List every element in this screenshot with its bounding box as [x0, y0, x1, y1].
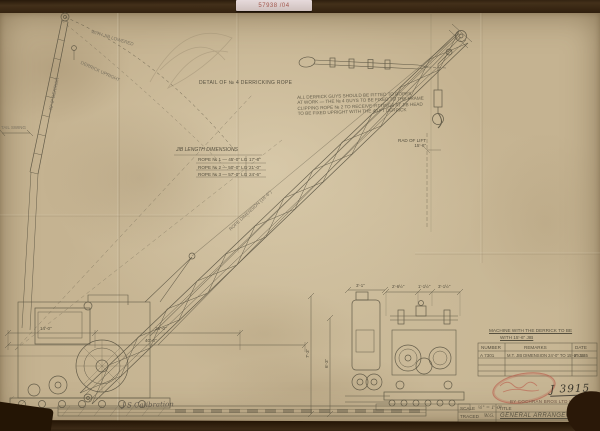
jib-table-row-value: 21'-0": [249, 165, 261, 170]
jib-table-row-value: 17'-6": [249, 157, 261, 162]
revisions-header-remarks: REMARKS: [524, 345, 547, 350]
sticker-number: 57938 /04: [258, 3, 289, 9]
revisions-header-date: DATE: [575, 345, 587, 350]
derricking-rope-detail: [298, 56, 446, 69]
dim-label: 7'-3": [305, 349, 310, 358]
tail-swing-label: TAIL SWING: [1, 125, 26, 130]
jib-table-row-item: ROPE № 1 — 45'-0" LG: [198, 157, 247, 162]
jib-table-row-item: ROPE № 2 — 50'-0" LG: [198, 165, 247, 170]
revisions-header-number: NUMBER: [481, 345, 501, 350]
traced-value: W.G.: [484, 414, 494, 419]
archive-sticker: 57938 /04: [236, 0, 312, 11]
title-label: TITLE: [499, 406, 512, 411]
dim-label: 2'-6½": [392, 284, 404, 289]
notes-block: ALL DERRICK GUYS SHOULD BE FITTED TO ROP…: [297, 91, 424, 117]
blueprint-photo: 57938 /04 DETAIL OF № 4 DERRICKING ROPE …: [0, 0, 600, 431]
scale-label: SCALE: [460, 406, 475, 411]
traced-label: TRACED: [460, 414, 479, 419]
main-jib-lattice: [80, 31, 468, 404]
table-surface-bottom: [0, 420, 600, 431]
raised-derrick-view: [0, 13, 282, 356]
dim-label: 14'-0": [40, 326, 52, 331]
jib-table-row-item: ROPE № 3 — 57'-0" LG: [198, 172, 247, 177]
jib-table-title: JIB LENGTH DIMENSIONS: [176, 148, 238, 154]
end-view-b: [376, 289, 470, 410]
revision-row-number: A 7301: [480, 353, 494, 358]
jib-table-row-value: 24'-6": [249, 172, 261, 177]
dim-label: 3'-1": [356, 283, 365, 288]
pencil-handwriting: J S Calibration: [122, 400, 174, 409]
revision-note-line2: WITH 15'-6" JIB: [500, 335, 533, 340]
revision-note-line1: MACHINE WITH THE DERRICK TO BE: [489, 328, 572, 333]
dim-label: 40'-0": [145, 338, 157, 343]
revision-row-date: 29.1.45: [574, 353, 588, 358]
rope-detail-label: DETAIL OF № 4 DERRICKING ROPE: [199, 81, 292, 87]
hook-dimension-lines: [424, 14, 441, 232]
machine-side-view: [10, 253, 195, 408]
dim-label: 26'-0": [155, 326, 167, 331]
base-beam: [58, 406, 426, 416]
end-view-a: [308, 287, 390, 417]
dim-label: 1'-1½": [418, 284, 430, 289]
dim-label: 6'-3": [324, 359, 329, 368]
hook-radius-line2: 15'-6": [398, 143, 426, 148]
hook-radius-label: RAD OF LIFT 15'-6": [398, 138, 426, 149]
dim-label: 3'-1½": [438, 284, 450, 289]
